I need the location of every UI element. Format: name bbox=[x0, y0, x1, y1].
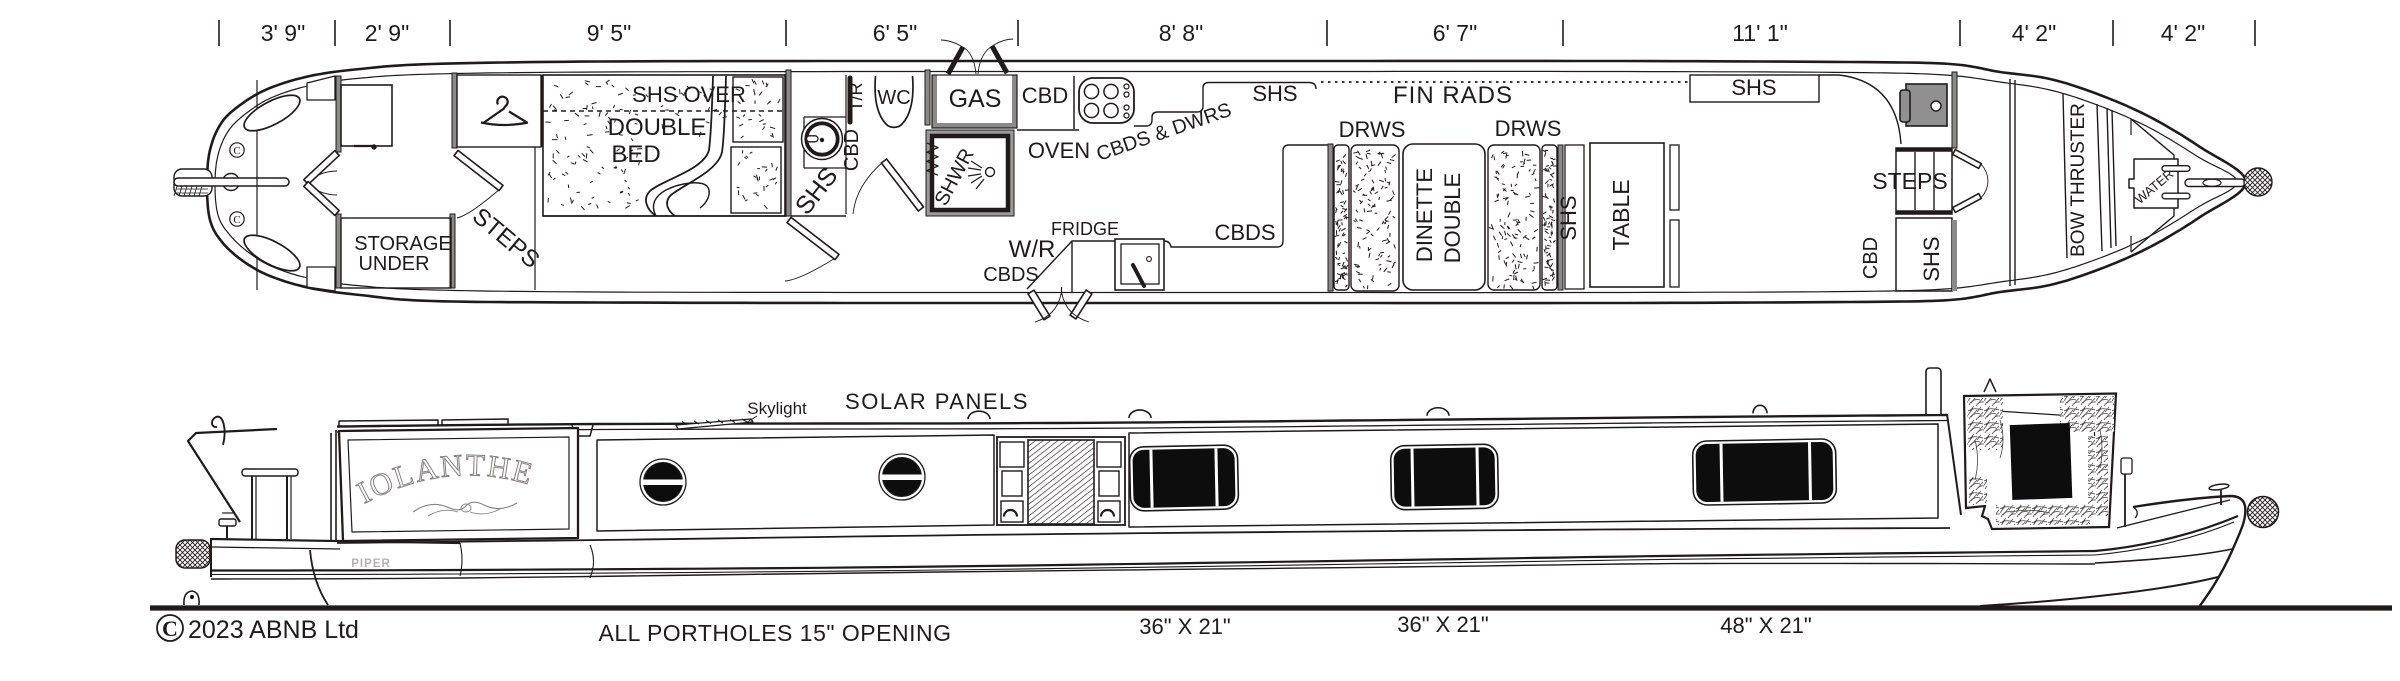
svg-text:SHS: SHS bbox=[1252, 81, 1297, 106]
svg-text:DRWS: DRWS bbox=[1495, 116, 1562, 141]
svg-text:GAS: GAS bbox=[949, 85, 1002, 113]
svg-text:CBDS: CBDS bbox=[1214, 220, 1275, 245]
svg-text:CBD: CBD bbox=[1860, 237, 1882, 279]
svg-text:2023 ABNB Ltd: 2023 ABNB Ltd bbox=[188, 616, 359, 644]
svg-text:2' 9": 2' 9" bbox=[365, 20, 410, 46]
svg-text:BOW THRUSTER: BOW THRUSTER bbox=[2068, 103, 2089, 257]
svg-text:DOUBLE: DOUBLE bbox=[608, 114, 707, 141]
svg-text:FRIDGE: FRIDGE bbox=[1051, 219, 1119, 239]
svg-text:DRWS: DRWS bbox=[1339, 117, 1406, 142]
svg-text:UNDER: UNDER bbox=[358, 253, 429, 275]
svg-text:9' 5": 9' 5" bbox=[587, 20, 632, 46]
svg-text:SHS: SHS bbox=[1919, 236, 1944, 281]
svg-text:WC: WC bbox=[877, 87, 910, 109]
svg-text:SOLAR PANELS: SOLAR PANELS bbox=[845, 389, 1029, 414]
svg-text:DOUBLE: DOUBLE bbox=[1440, 173, 1465, 263]
svg-text:ALL PORTHOLES 15" OPENING: ALL PORTHOLES 15" OPENING bbox=[598, 620, 951, 646]
svg-text:SHS OVER: SHS OVER bbox=[632, 82, 746, 107]
svg-text:36" X 21": 36" X 21" bbox=[1139, 614, 1230, 639]
svg-text:STORAGE: STORAGE bbox=[354, 233, 451, 255]
svg-text:BED: BED bbox=[611, 141, 660, 168]
svg-text:CBD: CBD bbox=[1022, 83, 1068, 108]
svg-text:6' 7": 6' 7" bbox=[1433, 20, 1478, 46]
svg-text:CBD: CBD bbox=[841, 129, 863, 171]
svg-text:PIPER: PIPER bbox=[351, 558, 391, 570]
svg-text:T/R: T/R bbox=[846, 83, 866, 112]
svg-text:SHS: SHS bbox=[1556, 195, 1581, 240]
svg-text:6' 5": 6' 5" bbox=[873, 20, 918, 46]
svg-text:48" X 21": 48" X 21" bbox=[1720, 613, 1811, 638]
svg-text:C: C bbox=[233, 214, 240, 226]
svg-text:4' 2": 4' 2" bbox=[2161, 20, 2206, 46]
svg-text:C: C bbox=[233, 145, 240, 157]
svg-text:4' 2": 4' 2" bbox=[2012, 20, 2057, 46]
svg-text:W/R: W/R bbox=[1009, 236, 1056, 263]
svg-text:DINETTE: DINETTE bbox=[1412, 168, 1437, 262]
svg-text:36" X 21": 36" X 21" bbox=[1397, 612, 1488, 637]
svg-text:11' 1": 11' 1" bbox=[1732, 20, 1788, 46]
svg-text:CBDS: CBDS bbox=[983, 264, 1039, 286]
svg-text:Skylight: Skylight bbox=[747, 399, 807, 418]
svg-text:FIN RADS: FIN RADS bbox=[1393, 82, 1513, 109]
svg-text:8' 8": 8' 8" bbox=[1159, 20, 1204, 46]
svg-text:OVEN: OVEN bbox=[1028, 138, 1090, 163]
svg-text:C: C bbox=[162, 616, 178, 641]
svg-text:SHS: SHS bbox=[1731, 75, 1776, 100]
svg-text:STEPS: STEPS bbox=[1872, 168, 1947, 194]
svg-text:TABLE: TABLE bbox=[1608, 179, 1634, 250]
svg-text:3' 9": 3' 9" bbox=[261, 20, 306, 46]
